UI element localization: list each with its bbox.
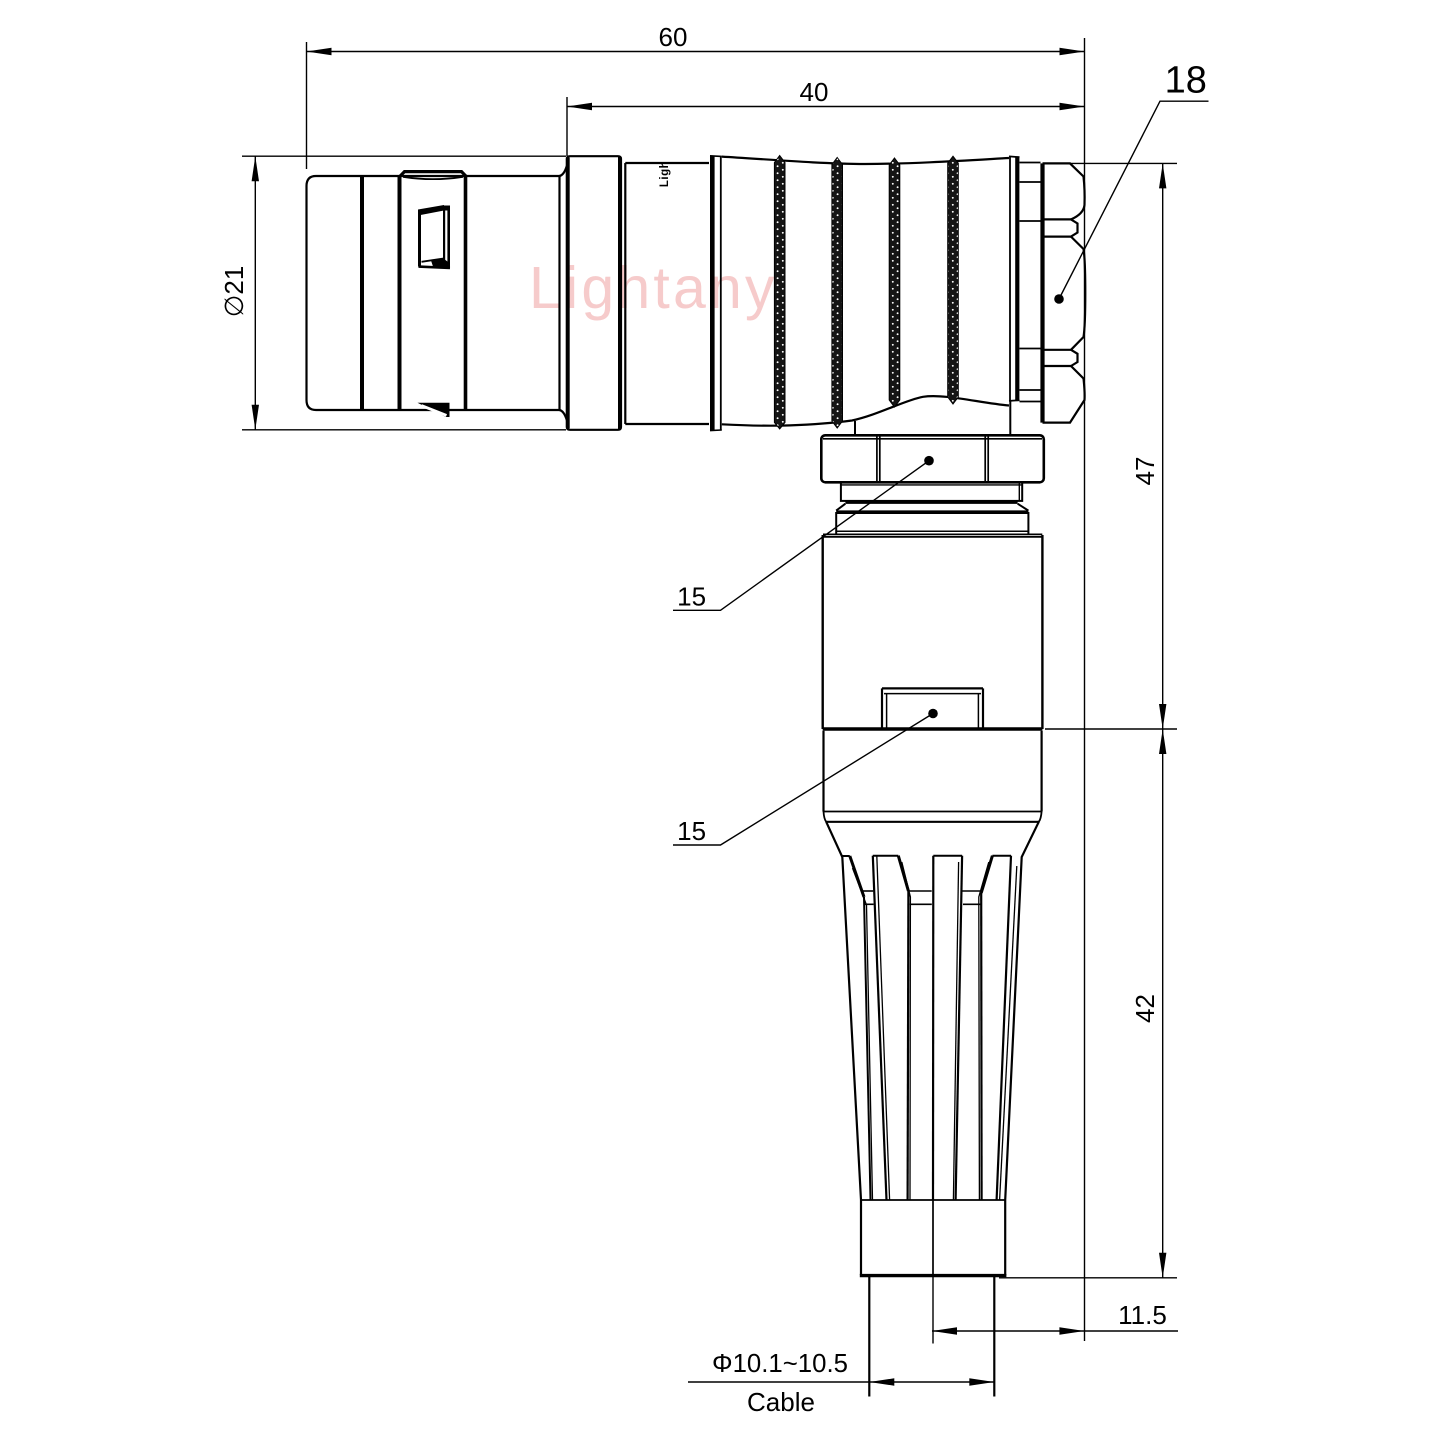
- svg-text:15: 15: [677, 816, 706, 846]
- svg-text:15: 15: [677, 581, 706, 611]
- svg-text:18: 18: [1165, 60, 1207, 102]
- svg-text:40: 40: [800, 77, 829, 107]
- svg-text:47: 47: [1130, 457, 1160, 486]
- svg-text:Ligh: Ligh: [659, 161, 671, 187]
- svg-text:Cable: Cable: [747, 1387, 815, 1417]
- svg-text:60: 60: [659, 22, 688, 52]
- svg-text:11.5: 11.5: [1118, 1300, 1167, 1330]
- svg-text:42: 42: [1130, 994, 1160, 1023]
- svg-text:∅21: ∅21: [219, 266, 249, 318]
- svg-text:Φ10.1~10.5: Φ10.1~10.5: [712, 1348, 848, 1378]
